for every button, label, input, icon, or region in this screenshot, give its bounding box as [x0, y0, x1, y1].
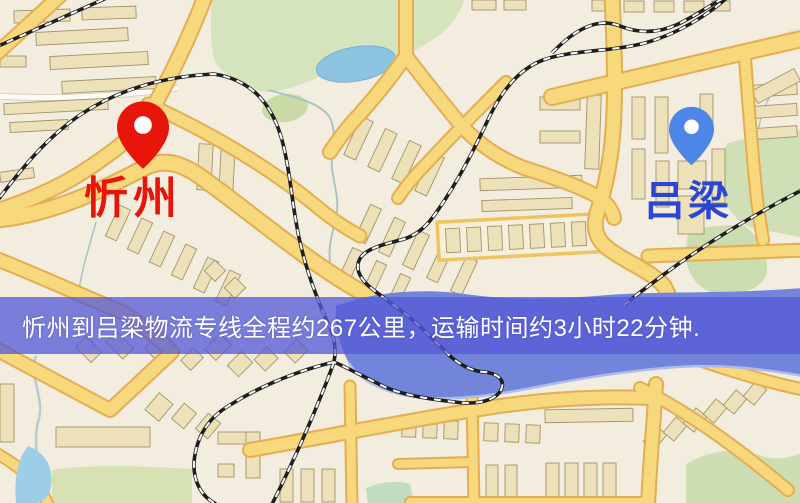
origin-pin-hole — [134, 116, 152, 134]
walled-compound — [437, 214, 599, 260]
logistics-map-image: 忻州 吕梁 忻州到吕梁物流专线全程约267公里，运输时间约3小时22分钟. — [0, 0, 800, 503]
destination-city-label: 吕梁 — [644, 181, 732, 222]
origin-pin-marker[interactable] — [117, 101, 169, 169]
origin-pin-shape — [117, 101, 169, 168]
map-canvas — [0, 0, 800, 503]
destination-pin-marker[interactable] — [669, 104, 714, 168]
origin-city-label: 忻州 — [84, 177, 182, 221]
route-info-text: 忻州到吕梁物流专线全程约267公里，运输时间约3小时22分钟. — [0, 308, 700, 343]
destination-pin-hole — [684, 119, 699, 134]
route-info-banner: 忻州到吕梁物流专线全程约267公里，运输时间约3小时22分钟. — [0, 297, 800, 354]
destination-pin-shape — [669, 107, 714, 165]
